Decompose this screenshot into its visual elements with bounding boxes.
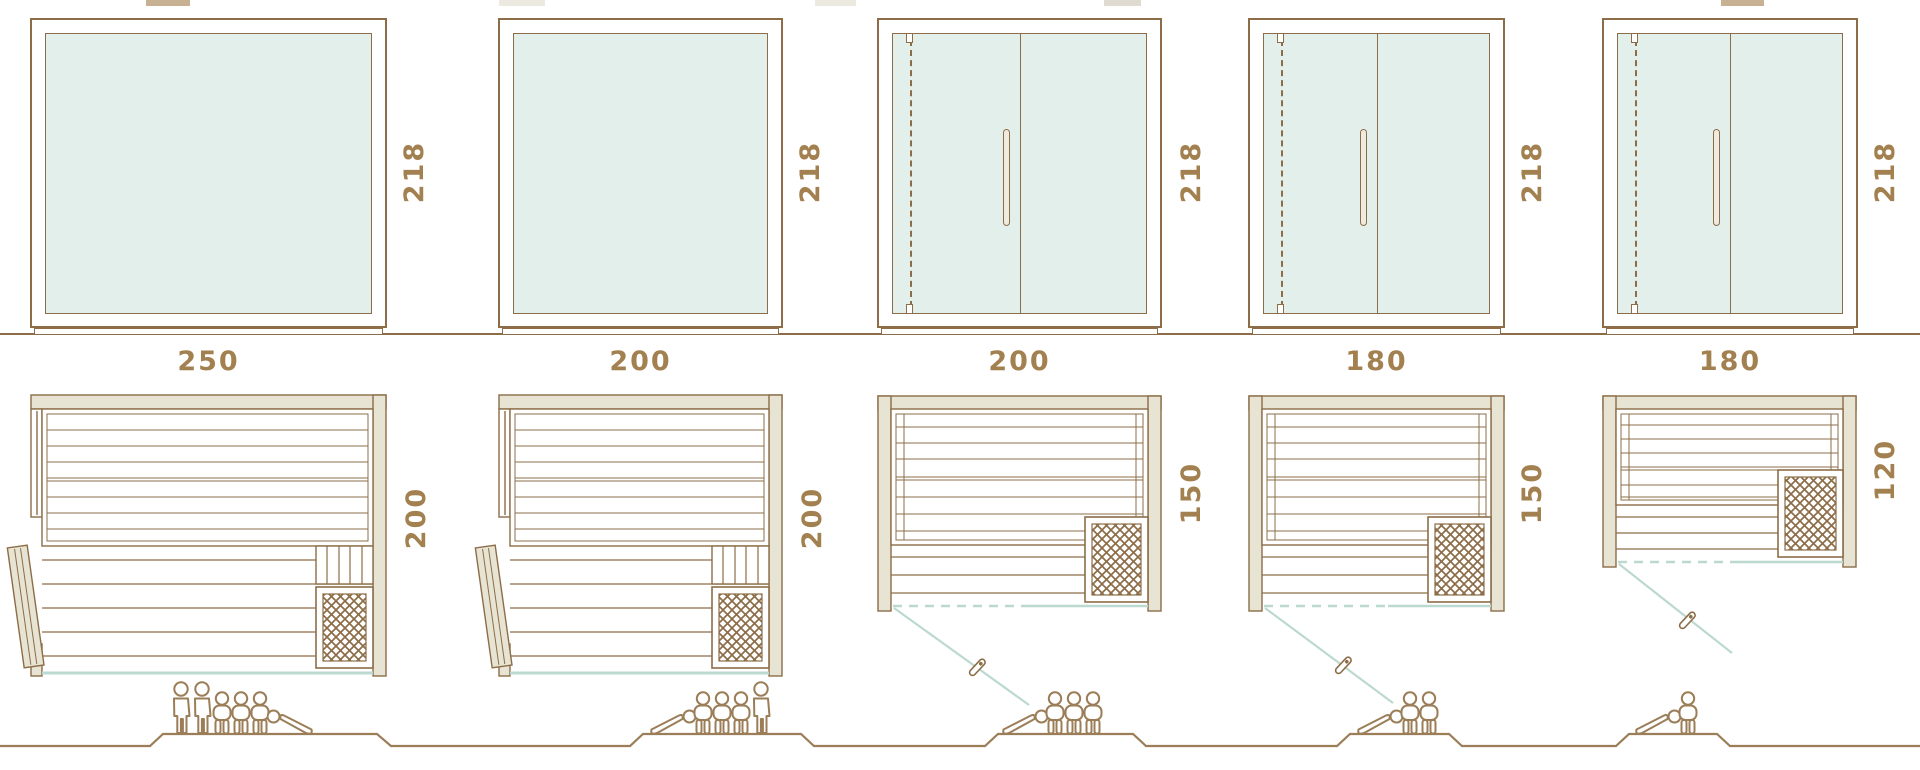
top-wall: [1249, 396, 1504, 410]
hinge-icon: [1631, 304, 1638, 314]
open-door-icon: [475, 545, 512, 668]
elevation-drawing: [30, 18, 387, 328]
model-column-5: 180 218 120: [1590, 0, 1920, 770]
elevation-drawing: [877, 18, 1162, 328]
glass-front: [45, 33, 372, 314]
sauna-models-diagram: 250 218 200: [0, 0, 1920, 770]
height-dimension-label: 218: [1497, 154, 1567, 190]
bench-end-slats: [316, 546, 373, 584]
depth-dimension-label: 200: [777, 500, 847, 536]
top-wall: [1603, 396, 1856, 410]
width-dimension-label: 180: [1248, 346, 1505, 380]
width-dimension-label: 200: [877, 346, 1162, 380]
door-handle-icon: [1360, 129, 1367, 226]
top-wall: [31, 395, 386, 409]
base-sill: [502, 328, 779, 335]
floor-plan-drawing: [1248, 395, 1505, 715]
base-sill: [881, 328, 1158, 335]
door-hinge-line: [1635, 40, 1637, 307]
glass-door-front: [1263, 33, 1490, 314]
hinge-icon: [1277, 304, 1284, 314]
door-hinge-line: [910, 40, 912, 307]
door-edge-line: [1020, 34, 1021, 313]
glass-door-front: [1617, 33, 1843, 314]
base-sill: [1606, 328, 1854, 335]
width-dimension-label: 200: [498, 346, 783, 380]
height-dimension-label: 218: [1850, 154, 1920, 190]
height-dimension-label: 218: [1156, 154, 1226, 190]
base-sill: [1252, 328, 1501, 335]
height-dimension-label: 218: [775, 154, 845, 190]
door-handle-icon: [1713, 129, 1720, 226]
door-handle-icon: [1003, 129, 1010, 226]
model-column-3: 200 218 150: [860, 0, 1230, 770]
glass-front: [513, 33, 768, 314]
hinge-icon: [1277, 33, 1284, 43]
hinge-icon: [1631, 33, 1638, 43]
floor-plan-drawing: [1602, 395, 1857, 695]
base-sill: [34, 328, 383, 335]
door-edge-line: [1377, 34, 1378, 313]
capacity-baseline: [0, 700, 1920, 770]
top-wall: [499, 395, 782, 409]
door-swing-line: [1619, 564, 1732, 653]
door-hinge-line: [1281, 40, 1283, 307]
depth-dimension-label: 200: [381, 500, 451, 536]
bench-end-slats: [712, 546, 769, 584]
depth-dimension-label: 150: [1497, 475, 1567, 511]
floor-plan-drawing: [0, 394, 387, 694]
hinge-icon: [906, 33, 913, 43]
model-column-4: 180 218 150: [1230, 0, 1590, 770]
left-wall: [1249, 396, 1262, 611]
hinge-icon: [906, 304, 913, 314]
door-edge-line: [1730, 34, 1731, 313]
left-wall: [878, 396, 891, 611]
model-column-2: 200 218 200: [450, 0, 860, 770]
elevation-drawing: [1602, 18, 1858, 328]
open-door-icon: [7, 545, 44, 668]
elevation-drawing: [498, 18, 783, 328]
height-dimension-label: 218: [379, 154, 449, 190]
depth-dimension-label: 120: [1850, 452, 1920, 488]
width-dimension-label: 180: [1602, 346, 1858, 380]
left-wall: [1603, 396, 1616, 567]
depth-dimension-label: 150: [1156, 475, 1226, 511]
floor-plan-drawing: [877, 395, 1162, 715]
model-column-1: 250 218 200: [0, 0, 450, 770]
elevation-drawing: [1248, 18, 1505, 328]
door-handle-icon: [968, 658, 986, 677]
floor-plan-drawing: [453, 394, 783, 694]
ground-profile-line: [0, 734, 1920, 746]
glass-door-front: [892, 33, 1147, 314]
top-wall: [878, 396, 1161, 410]
width-dimension-label: 250: [30, 346, 387, 380]
